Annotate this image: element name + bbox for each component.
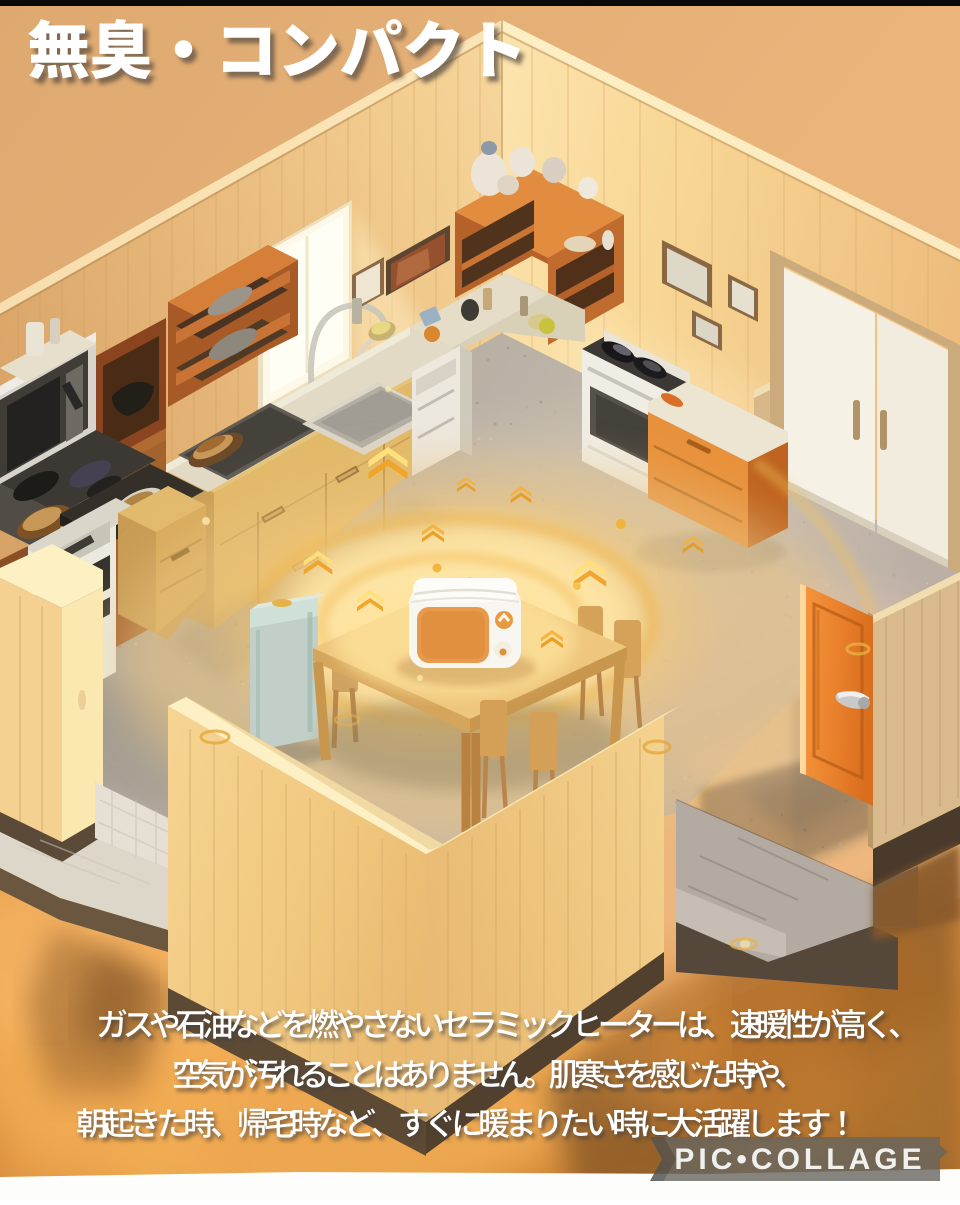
svg-text:PIC•COLLAGE: PIC•COLLAGE — [674, 1143, 925, 1176]
